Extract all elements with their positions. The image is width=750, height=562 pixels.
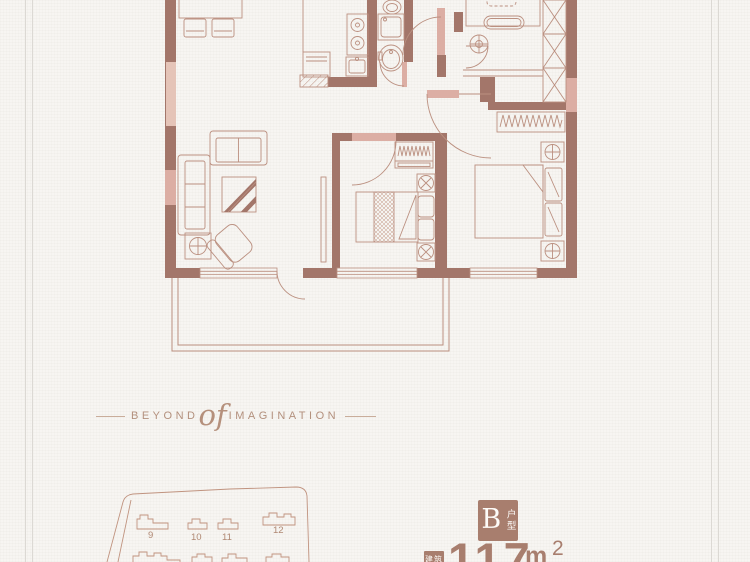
unit-type-label: 户型 [504,509,514,532]
bed-icon [475,165,562,238]
rug-icon [487,0,516,6]
wardrobe-zigzag-icon [497,112,565,132]
washing-machine-icon [378,14,404,40]
building-outline [133,552,180,562]
desk-chair-icon [470,35,488,53]
nightstand-lamp-icon [541,241,564,261]
toilet-icon [383,0,401,14]
area-value: 117 [448,536,533,562]
building-outline [222,554,247,562]
area-unit: m [525,544,547,562]
building-outline [188,519,207,529]
bed-icon [356,192,418,242]
study-furniture [466,0,540,53]
nightstand-lamp-icon [417,174,435,192]
building-outline [192,554,212,562]
building-label: 9 [148,530,153,541]
unit-letter: B [481,506,501,533]
building-outline [263,513,295,525]
brochure-page: BEYOND of IMAGINATION 9 10 11 12 B [0,0,750,562]
desk-icon [466,0,540,26]
wardrobe-x-icon [543,0,566,102]
building-label: 12 [273,525,284,536]
stove-icon [347,14,368,55]
site-boundary-inner [118,500,131,562]
bathroom-fixtures [378,0,404,71]
building-outline [266,554,289,562]
site-plan: 9 10 11 12 [0,0,350,562]
nightstand-icon [418,196,434,217]
building-outline [218,519,238,529]
nightstand-lamp-icon [541,142,564,162]
area-superscript: 2 [552,538,564,559]
nightstand-icon [418,219,434,240]
desk-mat-icon [484,16,524,29]
bedroom-middle-furniture [356,174,435,261]
wash-basin-icon [378,45,403,71]
nightstand-lamp-icon [417,243,435,261]
building-outline [137,515,168,529]
area-prefix-tag: 建筑 [424,551,444,562]
wardrobe-zigzag-icon [395,142,433,168]
building-label: 10 [191,532,202,543]
building-label: 11 [222,532,232,543]
bedroom-master-furniture [475,142,564,261]
